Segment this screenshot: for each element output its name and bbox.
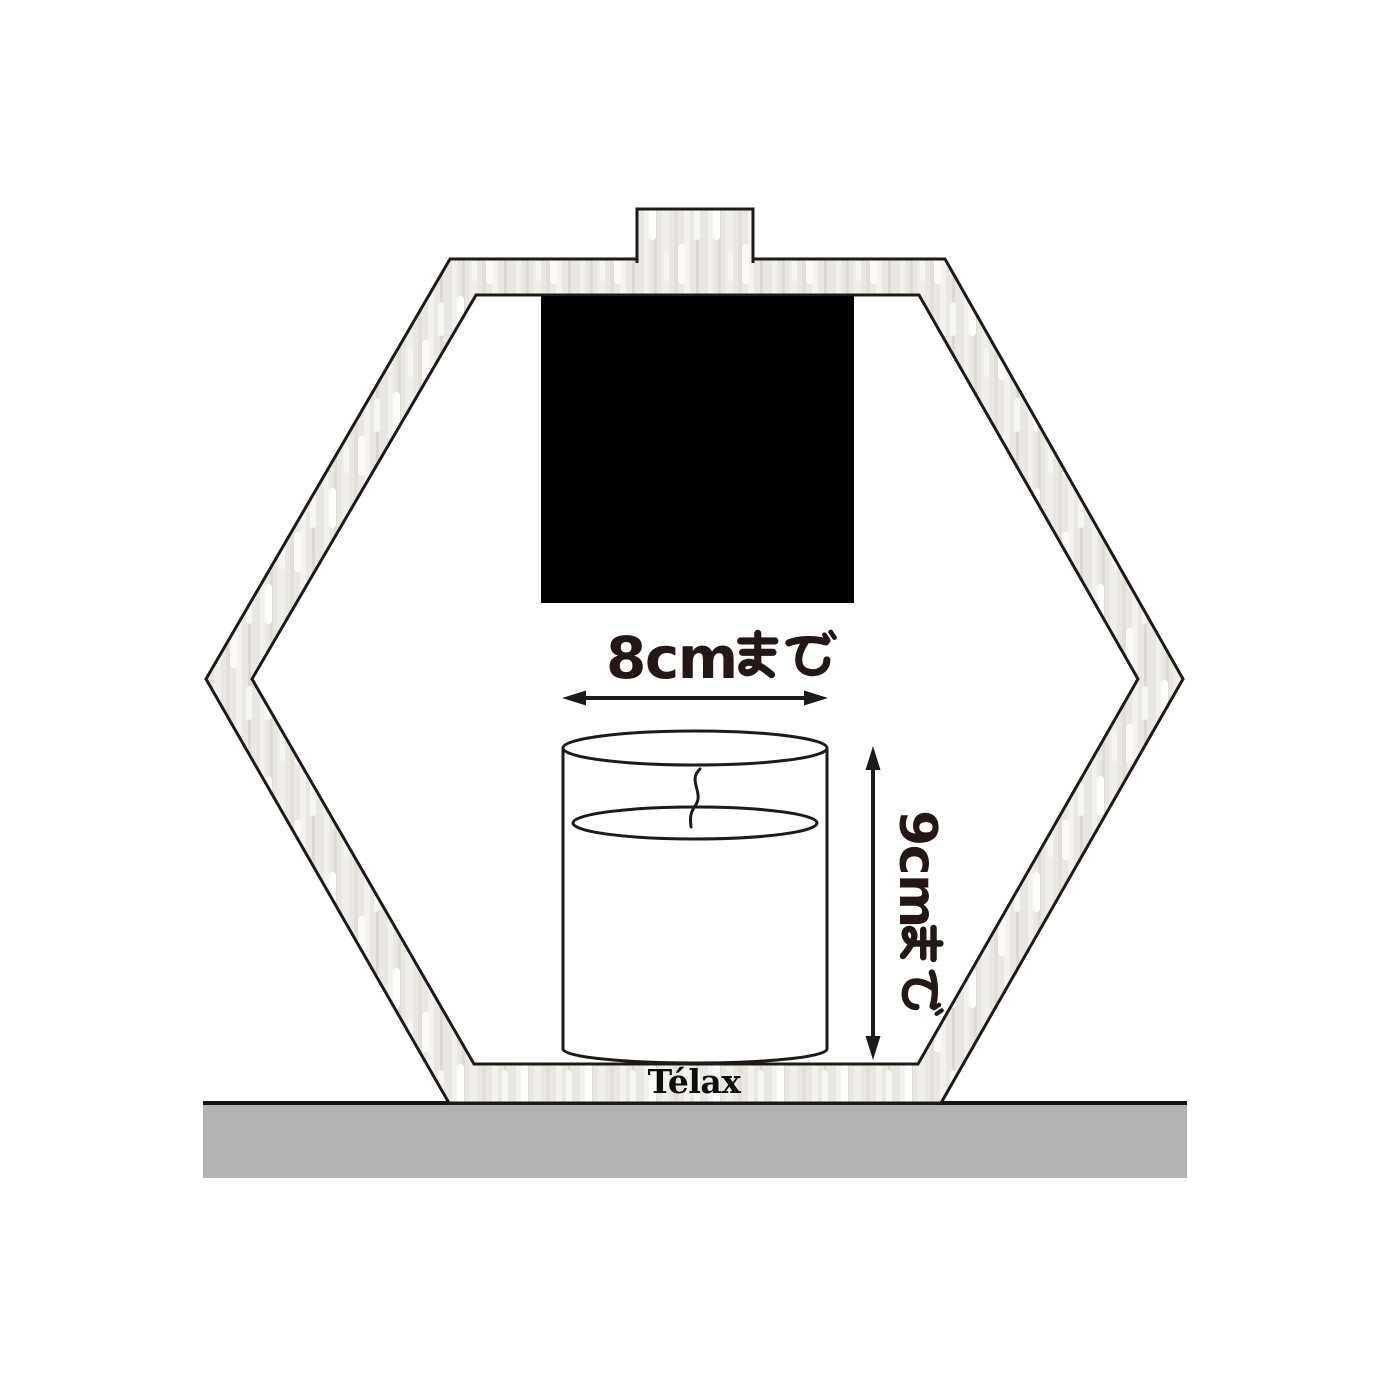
height-label: 9cm (887, 810, 947, 927)
lantern-size-diagram: 8cm 9cm Télax (0, 0, 1389, 1389)
wax-surface (573, 807, 817, 839)
ground-surface (203, 1104, 1187, 1178)
top-knob (637, 209, 753, 263)
diagram-svg: 8cm 9cm Télax (0, 0, 1389, 1389)
black-panel (541, 296, 854, 603)
candle-body (563, 748, 827, 1063)
candle-rim (563, 731, 827, 765)
width-label: 8cm (606, 624, 737, 692)
jar-candle (563, 731, 827, 1063)
brand-logo: Télax (648, 1062, 742, 1101)
